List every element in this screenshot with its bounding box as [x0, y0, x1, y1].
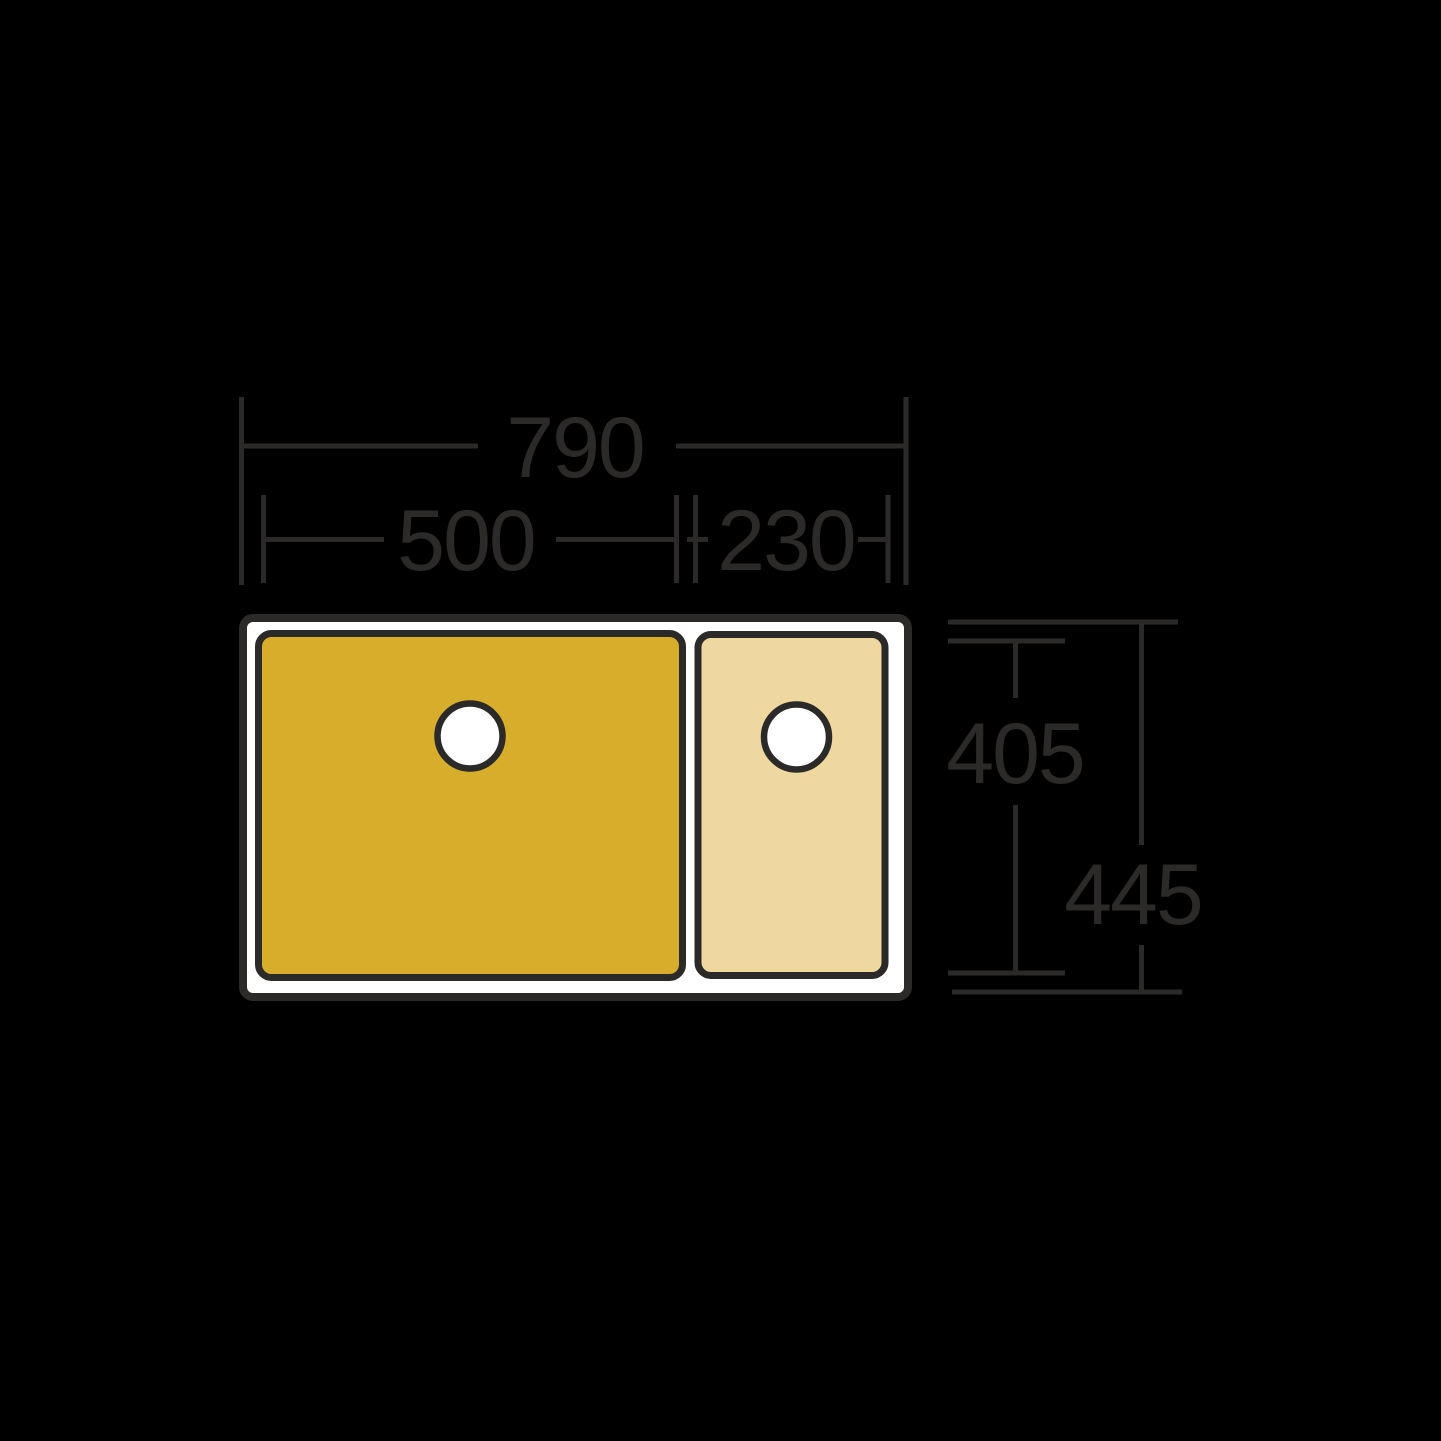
width-dimensions: 790 500 230 — [242, 397, 907, 589]
sink-dimension-diagram: 790 500 230 445 405 — [0, 0, 1441, 1441]
half-bowl — [698, 635, 885, 976]
main-bowl-drain — [438, 704, 503, 769]
half-bowl-drain — [764, 705, 829, 770]
overall-depth-label: 445 — [1064, 847, 1202, 943]
main-bowl — [259, 634, 683, 978]
sink-plan-view — [243, 618, 908, 997]
depth-dimensions: 445 405 — [946, 622, 1202, 992]
bowl-depth-label: 405 — [946, 706, 1084, 802]
half-bowl-width-label: 230 — [717, 493, 855, 589]
main-bowl-width-label: 500 — [397, 493, 535, 589]
overall-width-label: 790 — [506, 400, 644, 496]
